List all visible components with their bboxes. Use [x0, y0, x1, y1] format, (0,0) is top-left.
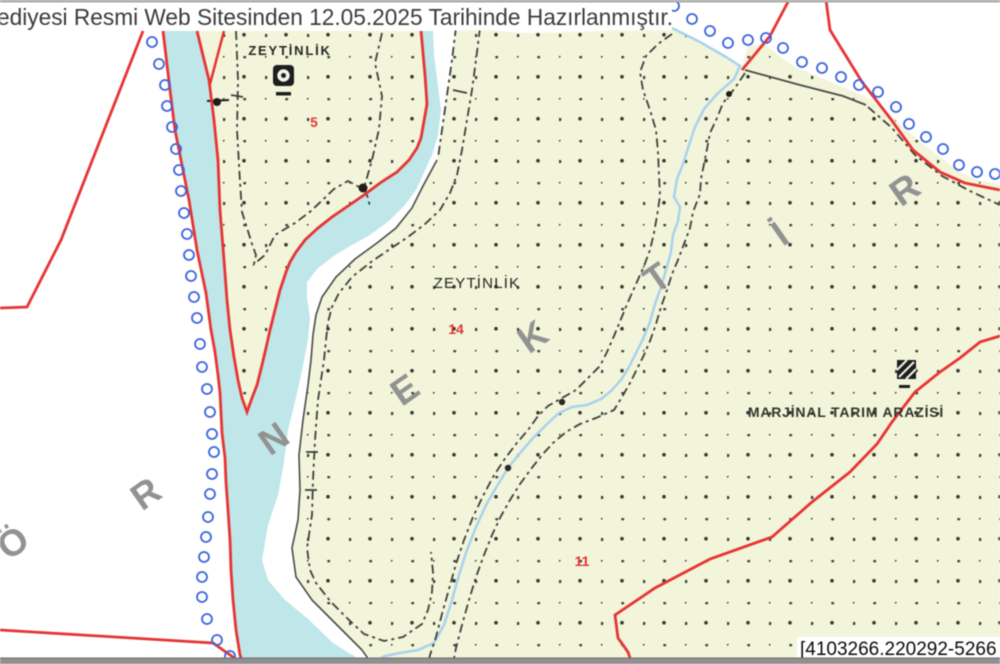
svg-text:14: 14 — [448, 321, 464, 337]
svg-text:11: 11 — [575, 553, 590, 569]
svg-text:MARJİNAL TARIM ARAZİSİ: MARJİNAL TARIM ARAZİSİ — [748, 404, 944, 420]
svg-text:5: 5 — [310, 115, 318, 130]
svg-text:ediyesi Resmi Web Sitesinden 1: ediyesi Resmi Web Sitesinden 12.05.2025 … — [0, 4, 673, 30]
svg-text:ZEYTİNLİK: ZEYTİNLİK — [248, 43, 331, 58]
svg-text:ZEYTİNLİK: ZEYTİNLİK — [434, 274, 521, 292]
svg-text:[4103266.220292-5266: [4103266.220292-5266 — [800, 639, 997, 660]
